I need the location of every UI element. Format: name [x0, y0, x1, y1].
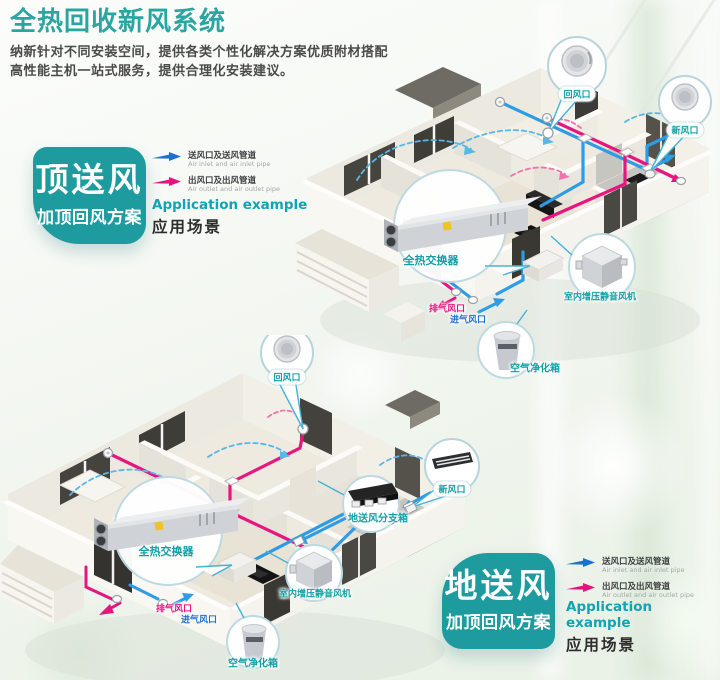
legend-top: 送风口及送风管道 Air inlet and air inlet pipe 出风…: [152, 151, 280, 201]
label-intake-vent: 进气风口: [450, 313, 486, 326]
legend-inlet-en: Air inlet and air inlet pipe: [602, 567, 685, 575]
diagram-bottom-floor-supply: 回风口 新风口 地送风分支箱 全热交换器 室内增压静音风机 排气风口 进气风口 …: [0, 335, 480, 680]
legend-row-outlet: 出风口及出风管道 Air outlet and air outlet pipe: [152, 176, 280, 194]
label-heat-exchanger-b: 全热交换器: [139, 543, 194, 559]
badge-sub-label: 加顶回风方案: [442, 608, 555, 633]
label-booster-fan: 室内增压静音风机: [564, 290, 636, 303]
label-return-vent-b: 回风口: [268, 370, 305, 385]
application-example-en: Application example: [152, 197, 307, 213]
outlet-arrow-icon: [566, 582, 596, 593]
label-purifier-b: 空气净化箱: [228, 655, 278, 670]
label-booster-fan-b: 室内增压静音风机: [279, 587, 351, 600]
application-example-bottom: Application example 应用场景: [566, 599, 720, 655]
inlet-arrow-icon: [152, 151, 182, 162]
house-b-illustration: [0, 335, 480, 680]
legend-row-inlet: 送风口及送风管道 Air inlet and air inlet pipe: [566, 557, 694, 575]
label-intake-vent-b: 进气风口: [181, 613, 217, 626]
application-example-cn: 应用场景: [566, 633, 720, 655]
label-purifier: 空气净化箱: [510, 360, 560, 375]
application-example-top: Application example 应用场景: [152, 197, 307, 237]
legend-row-inlet: 送风口及送风管道 Air inlet and air inlet pipe: [152, 151, 280, 169]
outlet-arrow-icon: [152, 176, 182, 187]
house-a-illustration: [295, 30, 720, 380]
application-example-en: Application example: [566, 599, 720, 631]
application-example-cn: 应用场景: [152, 215, 307, 237]
label-return-vent: 回风口: [558, 87, 595, 102]
label-floor-dist-box: 地送风分支箱: [348, 510, 408, 525]
scheme-badge-top-supply: 顶送风 加顶回风方案: [33, 147, 146, 244]
inlet-arrow-icon: [566, 557, 596, 568]
badge-main-label: 顶送风: [33, 163, 146, 198]
badge-sub-label: 加顶回风方案: [33, 203, 146, 228]
label-fresh-vent-b: 新风口: [433, 482, 470, 497]
scheme-badge-floor-supply: 地送风 加顶回风方案: [442, 553, 555, 649]
legend-inlet-en: Air inlet and air inlet pipe: [188, 161, 271, 169]
legend-outlet-en: Air outlet and air outlet pipe: [188, 186, 280, 194]
label-fresh-vent: 新风口: [666, 123, 703, 138]
legend-row-outlet: 出风口及出风管道 Air outlet and air outlet pipe: [566, 582, 694, 600]
label-heat-exchanger: 全热交换器: [404, 252, 459, 268]
bokeh-light: [540, 390, 690, 540]
page: 全热回收新风系统 纳新针对不同安装空间，提供各类个性化解决方案优质附材搭配 高性…: [0, 0, 720, 680]
diagram-top-ceiling-supply: 回风口 新风口 全热交换器 室内增压静音风机 排气风口 进气风口 空气净化箱: [295, 30, 720, 380]
badge-main-label: 地送风: [442, 569, 555, 604]
